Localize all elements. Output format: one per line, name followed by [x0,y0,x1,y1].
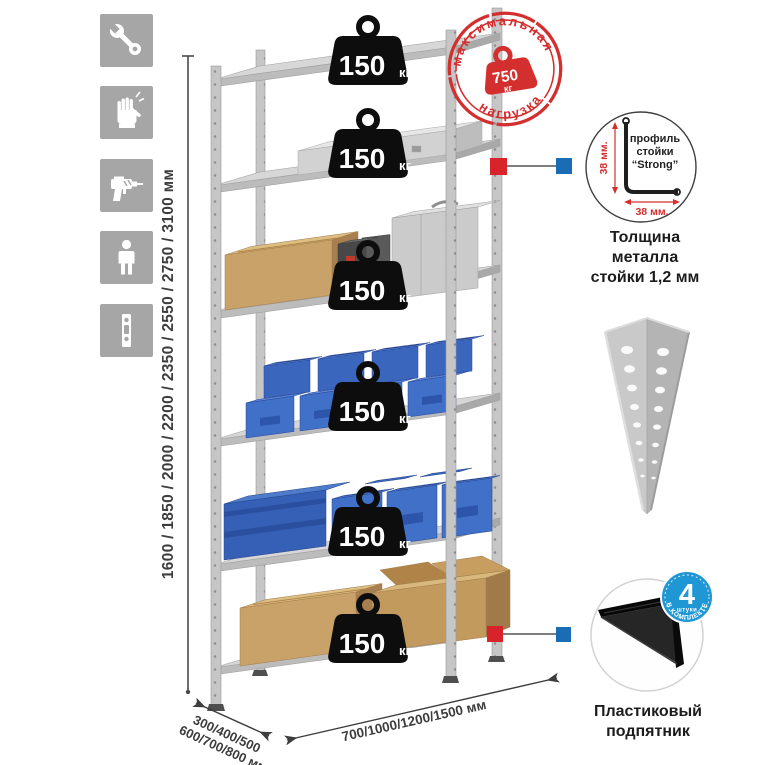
plastic-foot-image: 4 штуки в комплекте [588,560,714,710]
shelf-load-badge-4: 150 кг [313,358,423,438]
icon-tile-drill [100,159,153,212]
blue-marker-bottom [556,627,571,642]
gloves-icon [100,86,153,139]
person-icon [100,231,153,284]
stamp-kettlebell: 750 кг [479,44,538,97]
icon-tile-assembly [100,14,153,67]
svg-text:кг: кг [399,158,412,173]
plastic-foot-caption: Пластиковый подпятник [583,702,713,742]
svg-text:150: 150 [339,143,386,174]
depth-dimension: 300/400/500 600/700/800 мм [177,703,276,765]
icon-tile-post [100,304,153,357]
svg-text:4: 4 [679,579,695,611]
svg-text:профиль: профиль [630,133,680,145]
shelf-load-badge-5: 150 кг [313,483,423,563]
svg-text:38 мм.: 38 мм. [598,141,610,174]
profile-caption: Толщина металла стойки 1,2 мм [575,228,715,288]
svg-text:150: 150 [339,50,386,81]
svg-text:кг: кг [503,83,513,94]
height-dimension-label: 1600 / 1850 / 2000 / 2200 / 2350 / 2550 … [160,169,177,579]
icon-tile-gloves [100,86,153,139]
foot-connector [487,626,571,642]
svg-text:кг: кг [399,290,412,305]
width-dimension-label: 700/1000/1200/1500 мм [340,697,487,744]
icon-tile-person [100,231,153,284]
svg-text:150: 150 [339,275,386,306]
red-marker-top [490,158,507,175]
included-count-badge: 4 штуки в комплекте [661,571,713,623]
wrench-icon [100,14,153,67]
svg-text:150: 150 [339,628,386,659]
shelf-load-badge-2: 150 кг [313,105,423,185]
svg-text:38 мм.: 38 мм. [635,206,668,218]
post-profile-icon [100,304,153,357]
height-dimension: 1600 / 1850 / 2000 / 2200 / 2350 / 2550 … [160,56,194,694]
svg-text:штуки: штуки [677,608,698,614]
svg-text:150: 150 [339,521,386,552]
shelf-load-badge-1: 150 кг [313,12,423,92]
svg-text:150: 150 [339,396,386,427]
drill-icon [100,159,153,212]
svg-text:стойки: стойки [636,146,673,158]
post-profile-detail: 38 мм. 38 мм. профиль стойки “Strong” [580,106,702,228]
red-marker-bottom [487,626,503,642]
svg-text:кг: кг [399,643,412,658]
shelf-load-badge-6: 150 кг [313,590,423,670]
profile-connector [490,158,572,175]
svg-text:кг: кг [399,536,412,551]
shelving-infographic: 1600 / 1850 / 2000 / 2200 / 2350 / 2550 … [0,0,765,765]
blue-marker-top [556,158,572,174]
profile-labels: профиль стойки “Strong” [630,133,680,171]
svg-text:кг: кг [399,411,412,426]
svg-text:кг: кг [399,65,412,80]
width-dimension: 700/1000/1200/1500 мм [287,678,557,744]
max-load-stamp: максимальная нагрузка 750 кг [433,0,577,141]
shelf-load-badge-3: 150 кг [313,237,423,317]
corner-post-image [597,308,697,528]
svg-text:“Strong”: “Strong” [632,159,678,171]
